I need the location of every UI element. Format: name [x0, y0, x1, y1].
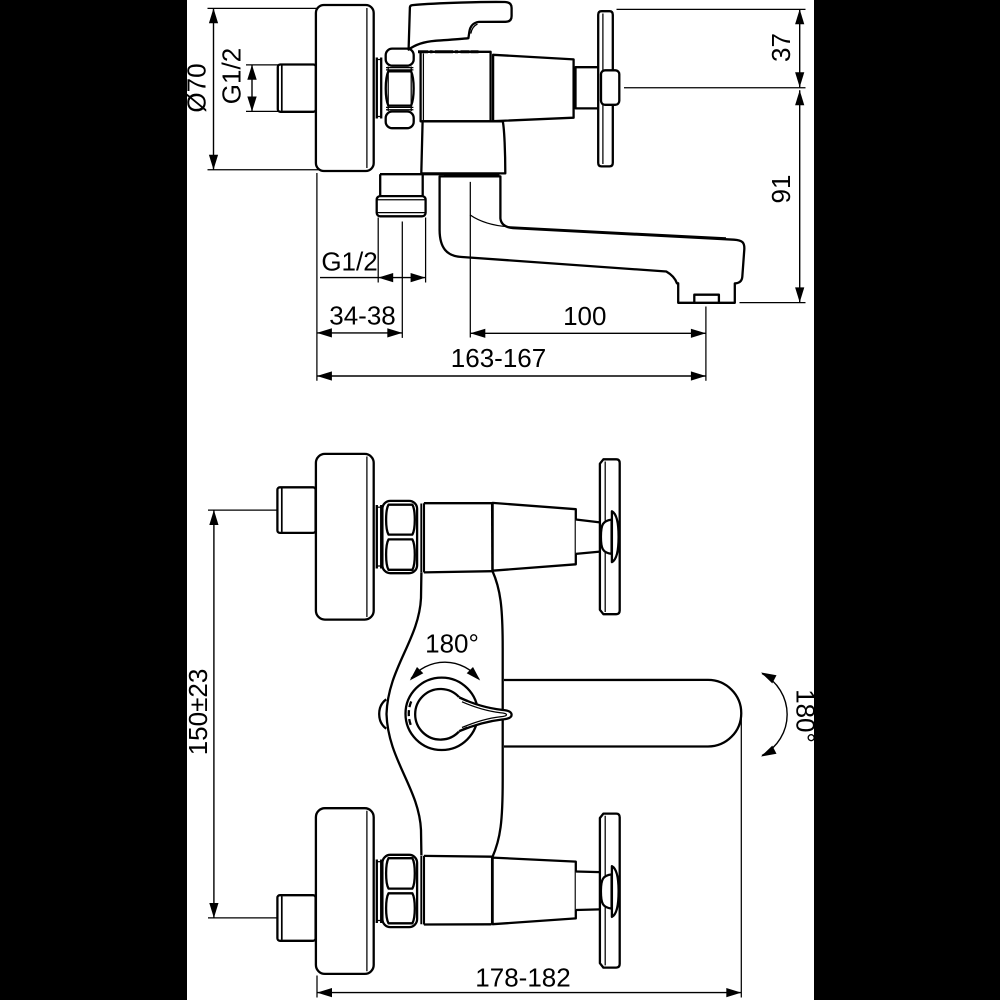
svg-text:178-182: 178-182 — [475, 962, 570, 992]
svg-text:180°: 180° — [425, 629, 479, 659]
svg-text:34-38: 34-38 — [329, 301, 396, 331]
svg-text:G1/2: G1/2 — [321, 247, 377, 277]
svg-text:163-167: 163-167 — [451, 343, 546, 373]
svg-text:Ø70: Ø70 — [182, 63, 212, 112]
svg-text:G1/2: G1/2 — [217, 48, 247, 104]
svg-text:180°: 180° — [791, 689, 821, 743]
svg-text:100: 100 — [563, 301, 606, 331]
svg-text:91: 91 — [766, 175, 796, 204]
svg-text:37: 37 — [766, 33, 796, 62]
svg-text:150±23: 150±23 — [183, 669, 213, 756]
